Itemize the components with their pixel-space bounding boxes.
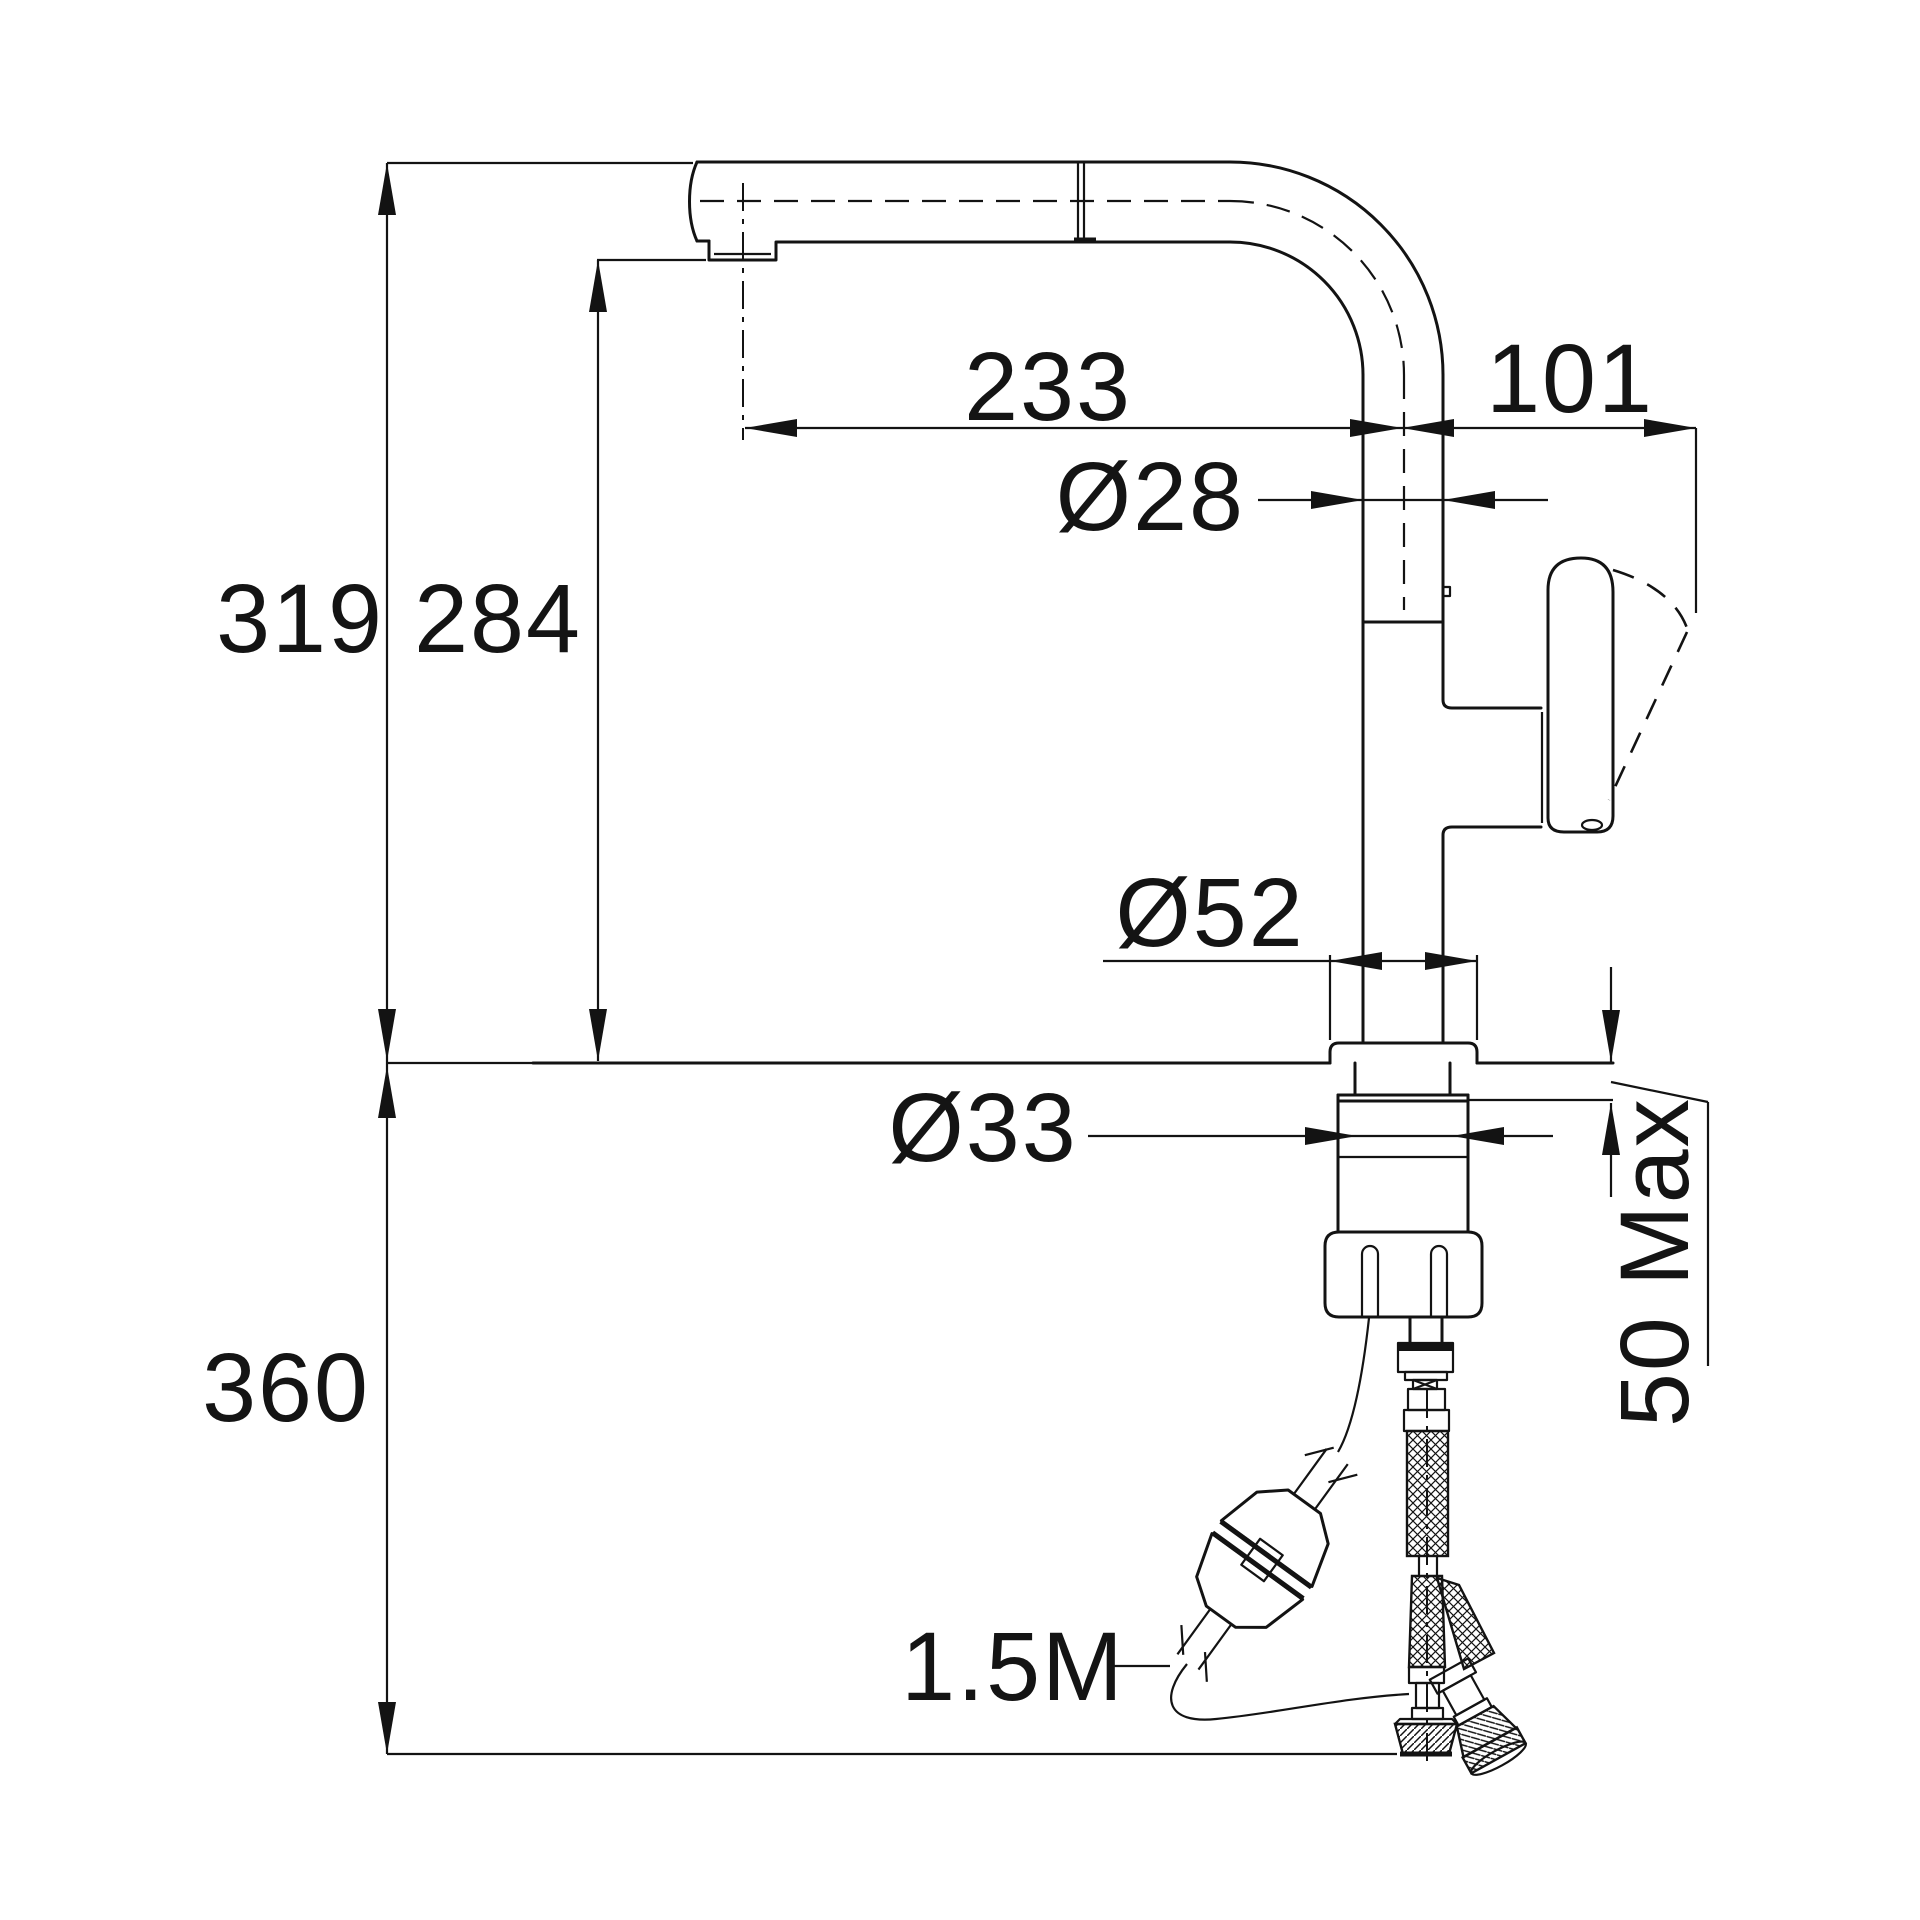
dim-handle-offset: 101	[1486, 324, 1654, 433]
dim-base-diameter: Ø52	[1115, 858, 1304, 967]
hose-outlet-fitting	[1398, 1317, 1453, 1431]
dim-shank-diameter: Ø33	[888, 1073, 1077, 1182]
check-valve-icon	[1413, 1380, 1437, 1389]
dim-spout-reach: 233	[964, 332, 1132, 441]
supply-hose-fitting-right	[1422, 1654, 1530, 1780]
handle-swing-edge	[1609, 632, 1687, 800]
dim-overall-height: 319	[216, 564, 384, 673]
dim-tube-diameter: Ø28	[1056, 442, 1245, 551]
faucet-riser-pipe	[1363, 375, 1542, 1042]
dimension-labels: 233 101 Ø28 319 284 Ø52 Ø33 50 Max 360 1…	[202, 324, 1709, 1721]
dim-hose-length: 1.5M	[901, 1612, 1125, 1721]
supply-hoses	[1395, 1431, 1529, 1780]
dim-spout-clearance: 284	[414, 564, 582, 673]
drawing-canvas: 233 101 Ø28 319 284 Ø52 Ø33 50 Max 360 1…	[0, 0, 1920, 1920]
faucet-dimension-drawing: 233 101 Ø28 319 284 Ø52 Ø33 50 Max 360 1…	[0, 0, 1920, 1920]
faucet-handle	[1548, 558, 1687, 832]
handle-swing-arc	[1613, 570, 1687, 628]
hose-counterweight	[1140, 1419, 1386, 1698]
dim-counter-thickness: 50 Max	[1600, 1097, 1709, 1427]
hose-break-ticks	[1300, 1437, 1362, 1494]
hose-break-ticks	[1163, 1625, 1225, 1682]
faucet-base-flange	[1330, 1043, 1477, 1063]
dim-under-counter-depth: 360	[202, 1333, 370, 1442]
mounting-hardware	[1325, 1063, 1482, 1317]
